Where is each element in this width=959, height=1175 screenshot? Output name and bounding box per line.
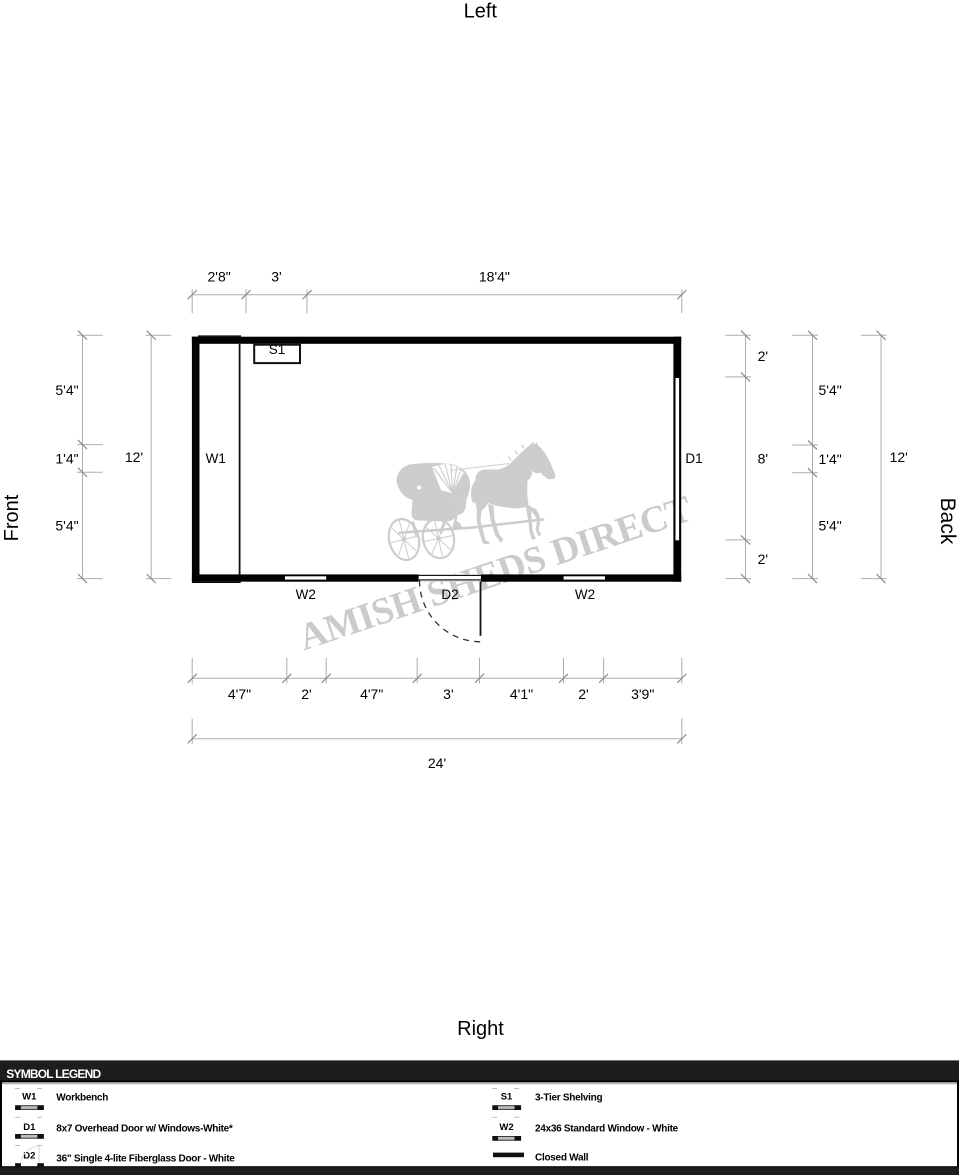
- svg-text:D2: D2: [441, 587, 458, 602]
- svg-text:Left: Left: [464, 1, 498, 23]
- svg-text:4'1": 4'1": [510, 686, 533, 702]
- svg-text:2': 2': [578, 686, 588, 702]
- svg-text:4'7": 4'7": [228, 686, 251, 702]
- svg-text:5'4": 5'4": [818, 382, 841, 398]
- svg-text:Closed Wall: Closed Wall: [535, 1152, 589, 1163]
- svg-text:5'4": 5'4": [55, 518, 78, 534]
- svg-text:12': 12': [125, 449, 143, 465]
- svg-text:8': 8': [758, 450, 768, 466]
- svg-text:24': 24': [428, 755, 446, 771]
- svg-text:1'4": 1'4": [55, 451, 78, 467]
- svg-text:3': 3': [443, 686, 453, 702]
- svg-text:1'4": 1'4": [818, 451, 841, 467]
- svg-text:2': 2': [301, 686, 311, 702]
- svg-text:W1: W1: [206, 451, 226, 466]
- svg-text:Front: Front: [1, 494, 23, 541]
- svg-text:24x36 Standard Window - White: 24x36 Standard Window - White: [535, 1124, 679, 1135]
- svg-text:3-Tier Shelving: 3-Tier Shelving: [535, 1092, 602, 1103]
- svg-text:12': 12': [890, 449, 908, 465]
- svg-text:3': 3': [271, 269, 281, 285]
- svg-text:AMISH SHEDS DIRECT: AMISH SHEDS DIRECT: [293, 488, 696, 659]
- svg-text:D1: D1: [23, 1122, 36, 1133]
- svg-text:Back: Back: [936, 498, 959, 545]
- svg-text:W1: W1: [22, 1092, 37, 1103]
- svg-text:2': 2': [758, 348, 768, 364]
- svg-text:SYMBOL LEGEND: SYMBOL LEGEND: [6, 1067, 101, 1081]
- svg-text:W2: W2: [575, 587, 595, 602]
- svg-text:5'4": 5'4": [818, 518, 841, 534]
- svg-text:S1: S1: [269, 342, 286, 357]
- svg-text:Right: Right: [457, 1018, 504, 1040]
- svg-text:2': 2': [758, 551, 768, 567]
- svg-text:D1: D1: [685, 451, 702, 466]
- svg-text:36" Single 4-lite Fiberglass D: 36" Single 4-lite Fiberglass Door - Whit…: [56, 1153, 235, 1164]
- svg-text:W2: W2: [296, 587, 316, 602]
- svg-text:18'4": 18'4": [479, 269, 510, 285]
- svg-text:2'8": 2'8": [207, 269, 230, 285]
- svg-text:4'7": 4'7": [360, 686, 383, 702]
- svg-text:W2: W2: [499, 1122, 513, 1133]
- svg-text:5'4": 5'4": [55, 382, 78, 398]
- svg-text:Workbench: Workbench: [56, 1092, 108, 1103]
- svg-text:3'9": 3'9": [631, 686, 654, 702]
- svg-text:S1: S1: [501, 1092, 513, 1103]
- svg-text:8x7 Overhead Door w/ Windows-W: 8x7 Overhead Door w/ Windows-White*: [56, 1124, 233, 1135]
